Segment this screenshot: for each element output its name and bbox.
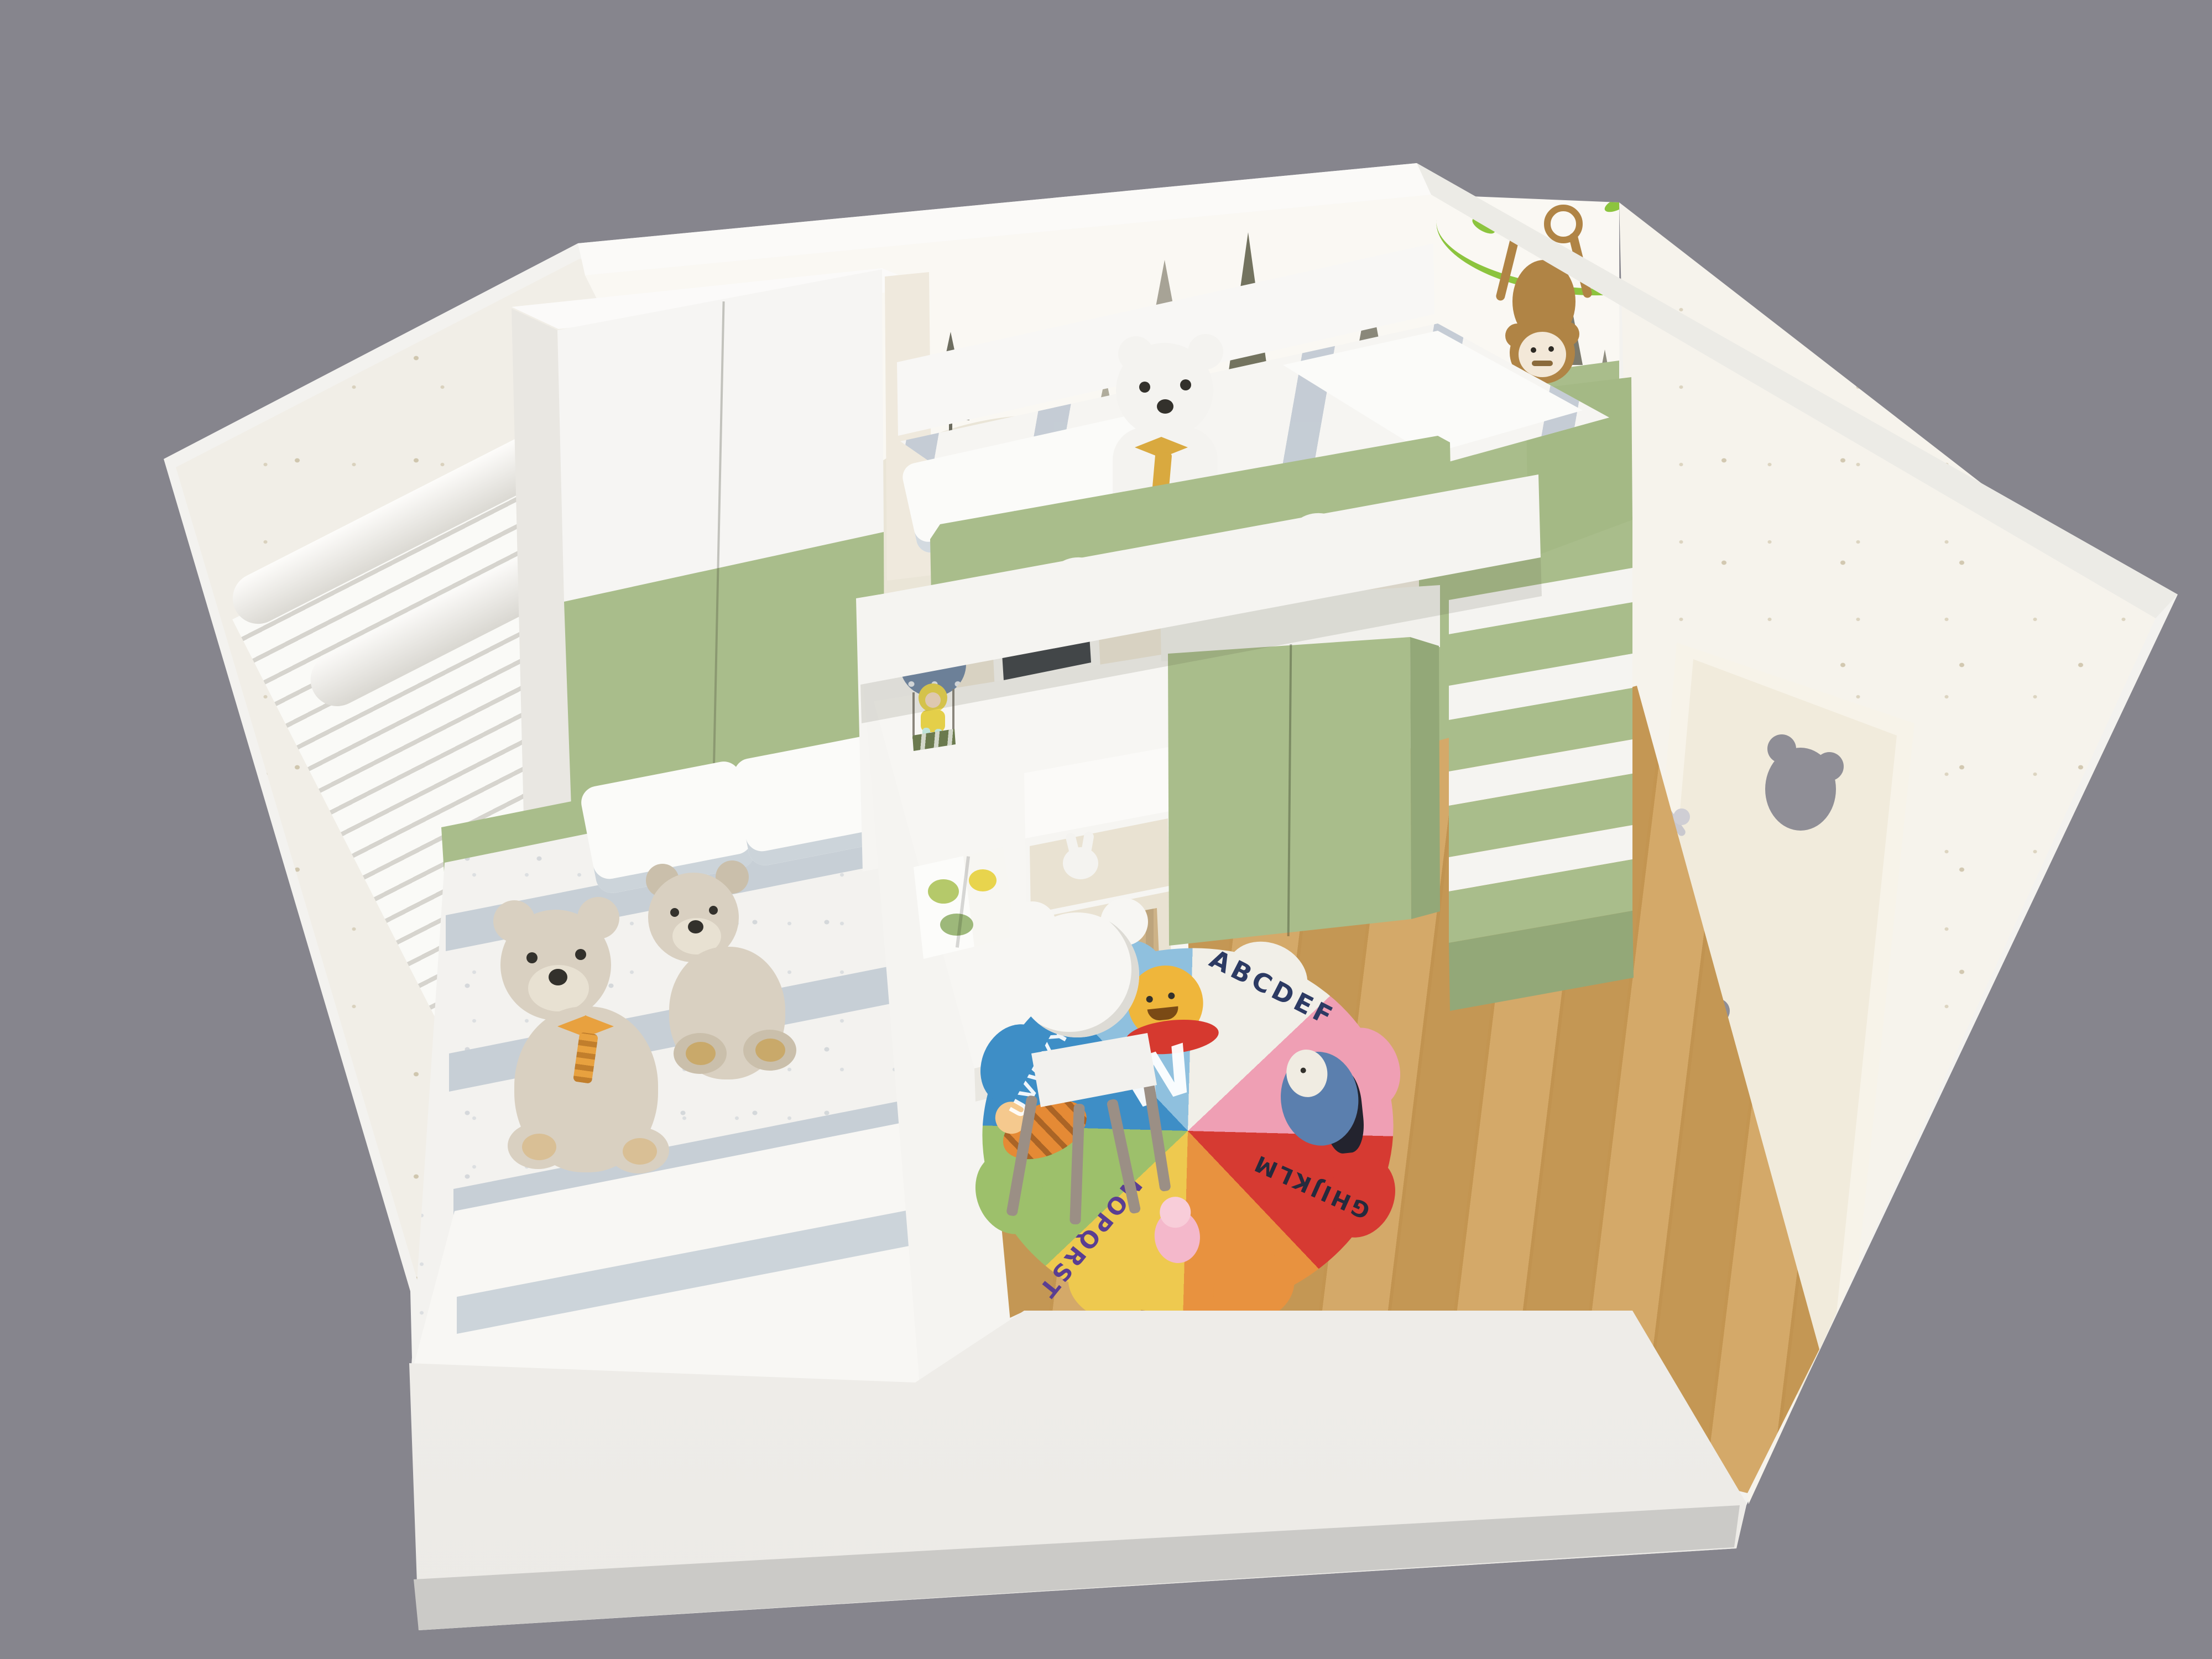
teddy-bear-nose <box>549 969 567 985</box>
monkey-tail <box>1544 205 1583 243</box>
white-teddy-eye <box>1139 382 1150 393</box>
door-bear-cutout <box>1765 748 1836 831</box>
monkey-eye <box>1531 347 1536 353</box>
white-teddy-nose <box>1157 399 1173 414</box>
door-handle-plate <box>1673 808 1690 825</box>
book-illustration <box>940 914 973 936</box>
white-teddy-head <box>1116 343 1213 438</box>
vine-leaf <box>1663 215 1691 234</box>
teddy-foot-pad <box>686 1042 716 1065</box>
book-illustration <box>928 879 959 904</box>
monkey-face <box>1519 332 1566 377</box>
monkey-smile <box>1532 361 1553 366</box>
chair-backrest <box>1015 912 1139 1037</box>
teddy-bear-eye <box>526 952 538 963</box>
teddy-foot-pad <box>755 1039 785 1062</box>
teddy-bear-eye <box>575 949 586 960</box>
white-teddy-eye <box>1180 379 1191 390</box>
teddy-bear-nose <box>688 920 703 933</box>
teddy-bear-eye <box>670 908 679 917</box>
teddy-foot-pad <box>522 1134 556 1160</box>
room-render: ABCDEF GHIJKLM NOPQRST UVWXYZ W <box>0 0 2212 1659</box>
book-illustration <box>969 869 997 891</box>
teddy-bear-eye <box>709 906 718 915</box>
monkey-eye <box>1548 346 1554 352</box>
teddy-foot-pad <box>623 1138 657 1165</box>
plush-bunny <box>1063 847 1098 879</box>
